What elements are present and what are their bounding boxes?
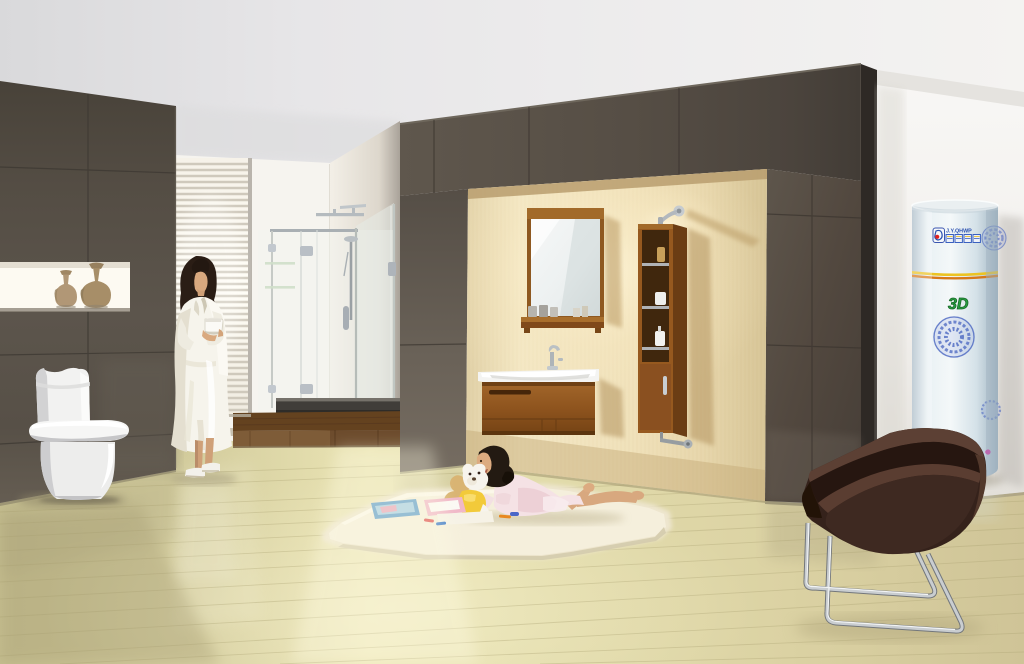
svg-text:J.Y.QHWP: J.Y.QHWP [946,229,972,235]
svg-text:3D: 3D [948,296,969,313]
